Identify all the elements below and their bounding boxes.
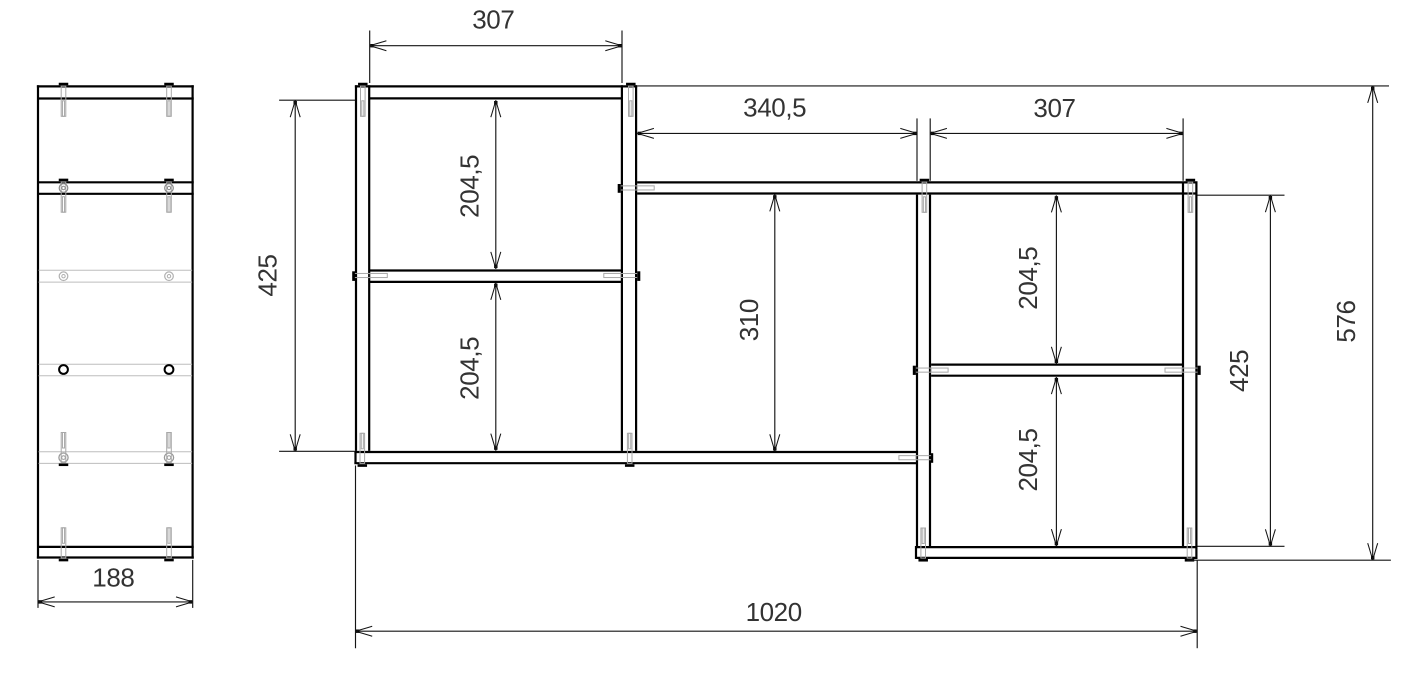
svg-text:188: 188	[92, 562, 134, 592]
svg-text:204,5: 204,5	[454, 155, 484, 218]
svg-text:204,5: 204,5	[1013, 428, 1043, 491]
svg-text:576: 576	[1331, 300, 1361, 342]
svg-text:340,5: 340,5	[743, 93, 806, 123]
svg-text:204,5: 204,5	[1013, 247, 1043, 310]
svg-text:425: 425	[253, 254, 283, 296]
svg-text:307: 307	[472, 4, 514, 34]
svg-text:310: 310	[734, 299, 764, 341]
svg-text:1020: 1020	[746, 597, 802, 627]
svg-text:425: 425	[1224, 350, 1254, 392]
svg-text:307: 307	[1033, 93, 1075, 123]
svg-text:204,5: 204,5	[454, 337, 484, 400]
